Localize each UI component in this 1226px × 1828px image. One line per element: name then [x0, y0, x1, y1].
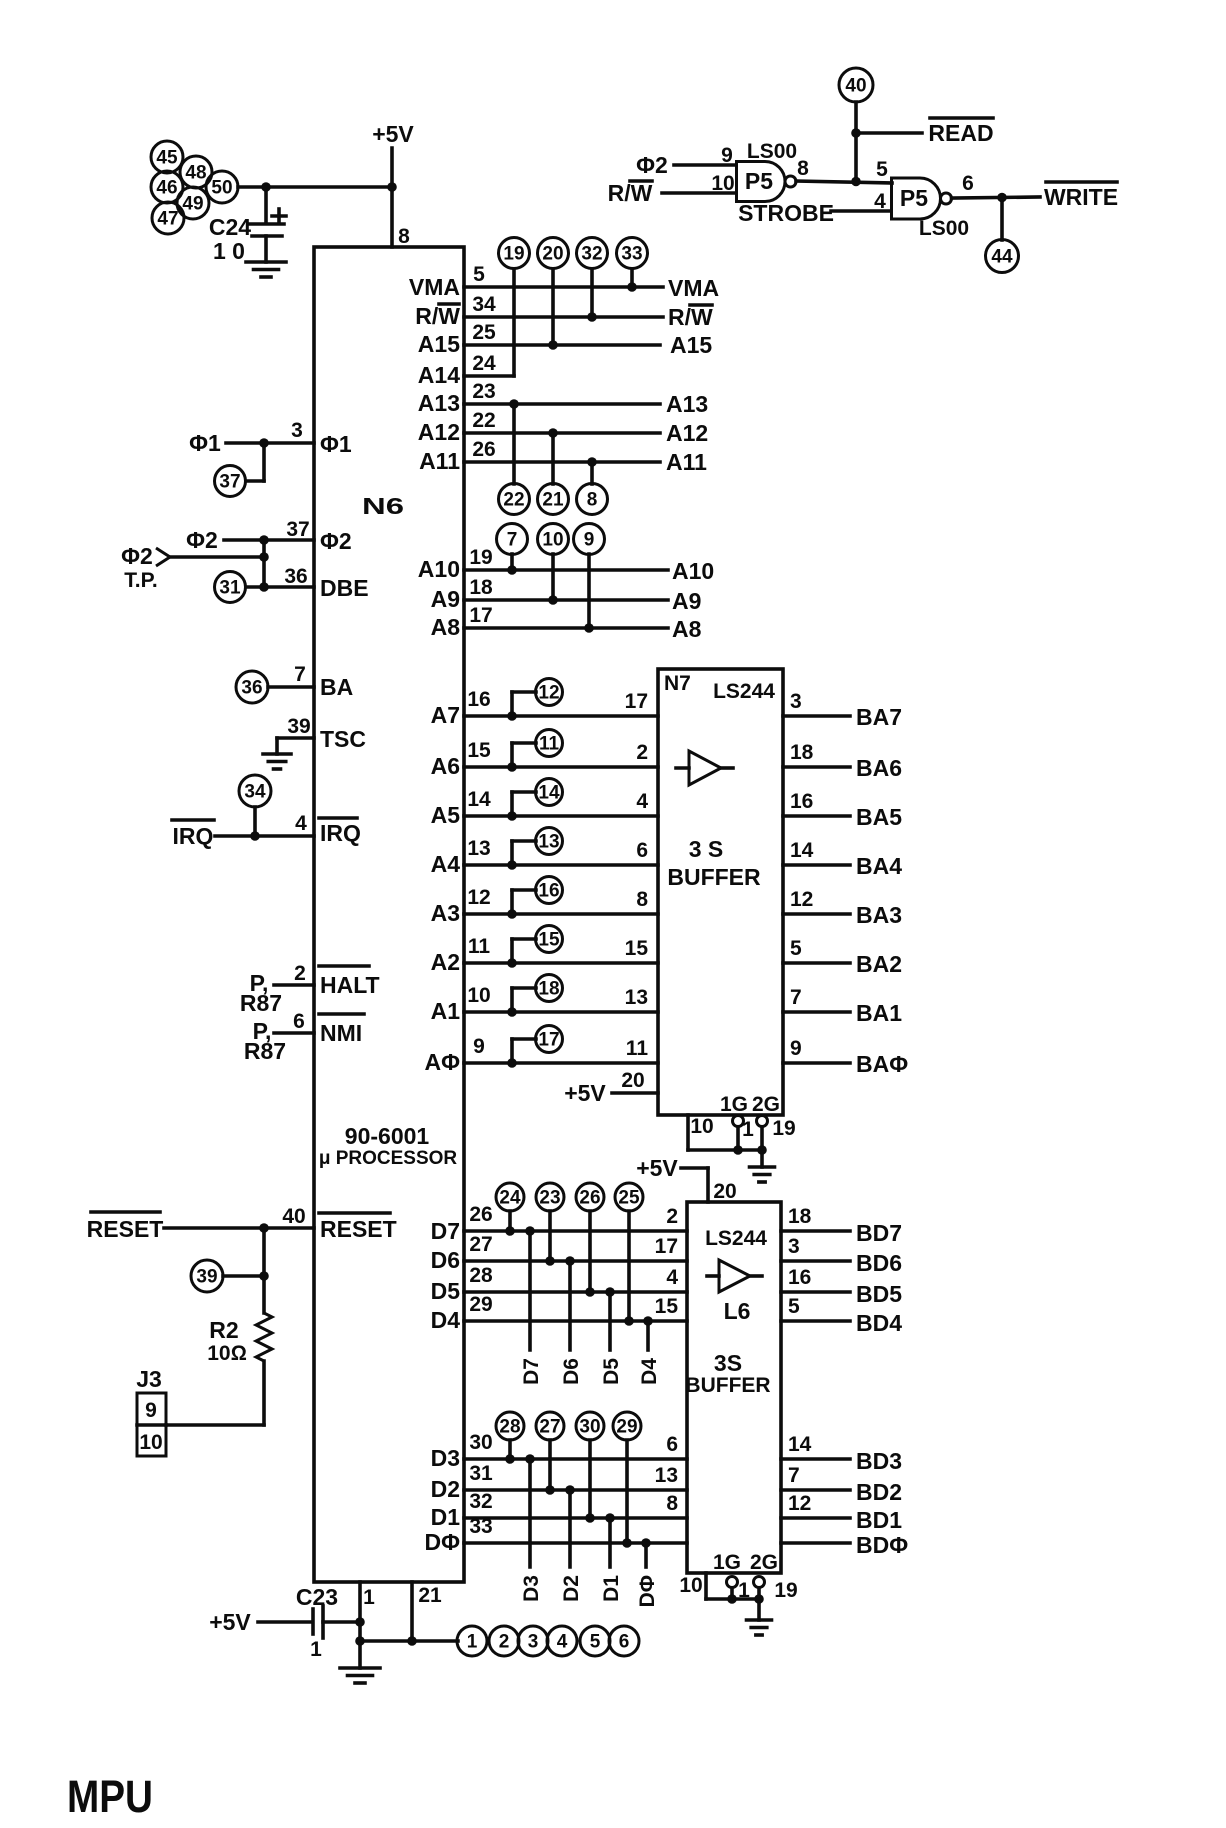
- svg-text:2G: 2G: [752, 1093, 780, 1116]
- svg-text:WRITE: WRITE: [1044, 184, 1118, 210]
- svg-text:A12: A12: [418, 419, 460, 445]
- svg-text:4: 4: [666, 1266, 678, 1289]
- svg-text:A13: A13: [666, 391, 708, 417]
- svg-text:22: 22: [503, 490, 524, 511]
- svg-text:C24: C24: [209, 214, 251, 240]
- svg-text:4: 4: [557, 1632, 568, 1653]
- svg-text:1: 1: [310, 1638, 322, 1661]
- svg-text:D1: D1: [600, 1575, 623, 1602]
- svg-text:10: 10: [467, 984, 490, 1007]
- svg-text:19: 19: [772, 1117, 795, 1140]
- svg-text:BD6: BD6: [856, 1250, 902, 1276]
- svg-text:18: 18: [790, 741, 814, 764]
- svg-text:2: 2: [294, 962, 306, 985]
- svg-text:R/W: R/W: [608, 180, 653, 206]
- svg-text:VMA: VMA: [668, 275, 719, 301]
- svg-text:+5V: +5V: [636, 1155, 678, 1181]
- svg-text:Φ1: Φ1: [320, 431, 352, 457]
- svg-text:+5V: +5V: [372, 121, 414, 147]
- svg-text:47: 47: [157, 209, 178, 230]
- svg-text:+5V: +5V: [564, 1080, 606, 1106]
- svg-text:A8: A8: [431, 614, 461, 640]
- svg-text:TSC: TSC: [320, 726, 366, 752]
- svg-text:28: 28: [499, 1417, 520, 1438]
- svg-text:5: 5: [876, 158, 888, 181]
- svg-text:BDΦ: BDΦ: [856, 1532, 908, 1558]
- svg-text:R/W: R/W: [668, 304, 713, 330]
- svg-text:8: 8: [398, 225, 410, 248]
- svg-text:24: 24: [472, 352, 496, 375]
- svg-text:4: 4: [874, 190, 886, 213]
- svg-text:BAΦ: BAΦ: [856, 1051, 908, 1077]
- svg-text:19: 19: [774, 1579, 797, 1602]
- svg-text:R87: R87: [244, 1038, 286, 1064]
- svg-text:A5: A5: [431, 802, 461, 828]
- svg-text:37: 37: [219, 472, 240, 493]
- svg-text:HALT: HALT: [320, 972, 380, 998]
- svg-text:30: 30: [579, 1417, 600, 1438]
- svg-text:23: 23: [472, 380, 495, 403]
- svg-text:Φ2: Φ2: [636, 152, 668, 178]
- svg-text:25: 25: [472, 321, 496, 344]
- svg-text:A15: A15: [418, 331, 460, 357]
- svg-text:A12: A12: [666, 420, 708, 446]
- svg-text:MPU: MPU: [67, 1771, 153, 1822]
- svg-text:21: 21: [542, 490, 564, 511]
- svg-text:DΦ: DΦ: [425, 1529, 461, 1555]
- svg-text:37: 37: [286, 518, 309, 541]
- svg-text:+5V: +5V: [209, 1609, 251, 1635]
- svg-text:BA4: BA4: [856, 853, 902, 879]
- svg-text:3 S: 3 S: [689, 836, 724, 862]
- svg-text:14: 14: [538, 783, 560, 804]
- svg-text:13: 13: [625, 986, 648, 1009]
- svg-text:IRQ: IRQ: [173, 823, 214, 849]
- svg-text:5: 5: [788, 1295, 800, 1318]
- svg-text:18: 18: [538, 979, 559, 1000]
- svg-text:9: 9: [145, 1399, 157, 1422]
- svg-text:BD3: BD3: [856, 1448, 902, 1474]
- svg-text:N7: N7: [664, 672, 691, 695]
- svg-text:STROBE: STROBE: [738, 200, 834, 226]
- svg-text:2: 2: [636, 741, 648, 764]
- svg-text:40: 40: [845, 76, 866, 97]
- svg-text:14: 14: [788, 1433, 812, 1456]
- svg-text:D6: D6: [560, 1358, 583, 1385]
- svg-text:13: 13: [655, 1464, 678, 1487]
- svg-text:16: 16: [538, 881, 559, 902]
- svg-text:R2: R2: [209, 1317, 238, 1343]
- svg-text:4: 4: [295, 812, 307, 835]
- svg-text:90-6001: 90-6001: [345, 1123, 430, 1149]
- svg-text:LS00: LS00: [747, 140, 797, 163]
- svg-text:15: 15: [625, 937, 649, 960]
- svg-text:NMI: NMI: [320, 1020, 362, 1046]
- svg-text:8: 8: [636, 888, 648, 911]
- svg-text:D3: D3: [520, 1575, 543, 1602]
- svg-text:24: 24: [499, 1188, 521, 1209]
- svg-text:14: 14: [467, 788, 491, 811]
- svg-text:11: 11: [539, 734, 560, 755]
- svg-text:BD1: BD1: [856, 1507, 902, 1533]
- svg-text:26: 26: [579, 1188, 600, 1209]
- svg-text:12: 12: [788, 1492, 811, 1515]
- svg-text:IRQ: IRQ: [320, 820, 361, 846]
- svg-text:A6: A6: [431, 753, 460, 779]
- svg-text:6: 6: [619, 1632, 630, 1653]
- svg-text:33: 33: [469, 1515, 492, 1538]
- svg-text:15: 15: [538, 930, 560, 951]
- svg-text:4: 4: [636, 790, 648, 813]
- svg-text:14: 14: [790, 839, 814, 862]
- svg-text:3: 3: [291, 419, 303, 442]
- svg-text:45: 45: [156, 148, 178, 169]
- svg-text:1G: 1G: [720, 1093, 748, 1116]
- svg-text:8: 8: [797, 157, 809, 180]
- svg-text:8: 8: [666, 1492, 678, 1515]
- svg-text:Φ1: Φ1: [189, 430, 221, 456]
- svg-text:D4: D4: [431, 1307, 461, 1333]
- svg-text:10: 10: [542, 530, 563, 551]
- svg-text:29: 29: [616, 1417, 637, 1438]
- svg-text:17: 17: [538, 1030, 559, 1051]
- svg-text:9: 9: [584, 530, 595, 551]
- svg-text:39: 39: [196, 1267, 217, 1288]
- svg-text:READ: READ: [928, 120, 993, 146]
- svg-text:P5: P5: [745, 168, 773, 194]
- svg-text:A1: A1: [431, 998, 461, 1024]
- svg-text:34: 34: [472, 293, 496, 316]
- svg-text:26: 26: [472, 438, 495, 461]
- svg-text:J3: J3: [136, 1366, 162, 1392]
- svg-text:9: 9: [721, 144, 733, 167]
- svg-text:15: 15: [467, 739, 491, 762]
- svg-text:1G: 1G: [713, 1551, 741, 1574]
- svg-text:BD2: BD2: [856, 1479, 902, 1505]
- svg-text:9: 9: [473, 1035, 485, 1058]
- svg-text:10Ω: 10Ω: [207, 1342, 247, 1365]
- svg-text:L6: L6: [724, 1298, 751, 1324]
- svg-text:A9: A9: [431, 586, 460, 612]
- svg-text:RESET: RESET: [320, 1216, 397, 1242]
- svg-text:36: 36: [241, 678, 262, 699]
- svg-text:11: 11: [468, 935, 491, 958]
- svg-text:A14: A14: [418, 362, 460, 388]
- svg-text:11: 11: [626, 1037, 649, 1060]
- svg-text:13: 13: [538, 832, 559, 853]
- svg-text:AΦ: AΦ: [425, 1049, 461, 1075]
- svg-text:34: 34: [244, 782, 266, 803]
- svg-text:50: 50: [211, 178, 232, 199]
- svg-text:A11: A11: [419, 448, 460, 474]
- svg-text:13: 13: [467, 837, 490, 860]
- svg-text:RESET: RESET: [87, 1216, 164, 1242]
- svg-text:2: 2: [499, 1632, 510, 1653]
- svg-text:A15: A15: [670, 332, 712, 358]
- svg-text:A10: A10: [418, 556, 460, 582]
- svg-text:D2: D2: [431, 1476, 460, 1502]
- svg-text:BA: BA: [320, 674, 353, 700]
- svg-text:32: 32: [581, 244, 602, 265]
- svg-text:27: 27: [469, 1233, 492, 1256]
- svg-text:6: 6: [962, 172, 974, 195]
- svg-text:A9: A9: [672, 588, 701, 614]
- svg-text:15: 15: [655, 1295, 679, 1318]
- svg-text:D4: D4: [638, 1358, 661, 1385]
- svg-text:10: 10: [679, 1574, 702, 1597]
- svg-text:7: 7: [790, 986, 802, 1009]
- svg-text:32: 32: [469, 1490, 492, 1513]
- svg-text:7: 7: [294, 663, 306, 686]
- svg-text:BUFFER: BUFFER: [667, 864, 761, 890]
- svg-text:LS244: LS244: [705, 1227, 767, 1250]
- svg-text:7: 7: [507, 530, 518, 551]
- svg-text:27: 27: [539, 1417, 560, 1438]
- svg-text:16: 16: [790, 790, 813, 813]
- svg-text:1: 1: [363, 1586, 375, 1609]
- svg-text:20: 20: [621, 1069, 644, 1092]
- svg-text:17: 17: [625, 690, 648, 713]
- svg-text:26: 26: [469, 1203, 492, 1226]
- svg-text:A2: A2: [431, 949, 460, 975]
- svg-text:30: 30: [469, 1431, 492, 1454]
- svg-text:D1: D1: [431, 1504, 461, 1530]
- svg-text:19: 19: [503, 244, 524, 265]
- svg-text:40: 40: [282, 1205, 305, 1228]
- svg-text:18: 18: [469, 576, 493, 599]
- svg-text:A11: A11: [666, 449, 707, 475]
- svg-text:39: 39: [287, 715, 310, 738]
- svg-text:10: 10: [139, 1431, 162, 1454]
- svg-text:28: 28: [469, 1264, 493, 1287]
- svg-text:BA7: BA7: [856, 704, 902, 730]
- svg-text:19: 19: [469, 546, 492, 569]
- svg-text:10: 10: [711, 172, 734, 195]
- svg-text:7: 7: [788, 1464, 800, 1487]
- svg-text:D5: D5: [600, 1358, 623, 1385]
- svg-text:3: 3: [790, 690, 802, 713]
- svg-text:48: 48: [185, 163, 206, 184]
- svg-text:10: 10: [690, 1115, 713, 1138]
- svg-text:BD4: BD4: [856, 1310, 902, 1336]
- svg-text:VMA: VMA: [409, 274, 460, 300]
- svg-text:LS00: LS00: [919, 217, 969, 240]
- svg-text:5: 5: [473, 263, 485, 286]
- svg-text:6: 6: [293, 1010, 305, 1033]
- svg-text:18: 18: [788, 1205, 812, 1228]
- svg-text:BD7: BD7: [856, 1220, 902, 1246]
- svg-text:12: 12: [538, 683, 559, 704]
- svg-text:16: 16: [467, 688, 490, 711]
- svg-text:2G: 2G: [750, 1551, 778, 1574]
- svg-text:31: 31: [469, 1462, 493, 1485]
- svg-text:5: 5: [590, 1632, 601, 1653]
- svg-text:3: 3: [788, 1235, 800, 1258]
- svg-text:23: 23: [539, 1188, 560, 1209]
- svg-text:17: 17: [655, 1235, 678, 1258]
- svg-text:8: 8: [587, 490, 598, 511]
- svg-text:T.P.: T.P.: [124, 569, 157, 592]
- svg-text:BD5: BD5: [856, 1281, 902, 1307]
- svg-text:C23: C23: [296, 1584, 338, 1610]
- svg-text:1 0: 1 0: [213, 238, 245, 264]
- svg-text:46: 46: [156, 178, 177, 199]
- svg-text:R87: R87: [240, 990, 282, 1016]
- svg-text:D5: D5: [431, 1278, 461, 1304]
- svg-text:1: 1: [467, 1632, 478, 1653]
- svg-text:LS244: LS244: [713, 680, 775, 703]
- svg-text:R/W: R/W: [415, 303, 460, 329]
- svg-text:20: 20: [542, 244, 563, 265]
- svg-text:A13: A13: [418, 390, 460, 416]
- svg-text:A3: A3: [431, 900, 460, 926]
- svg-text:31: 31: [219, 578, 241, 599]
- svg-text:2: 2: [666, 1205, 678, 1228]
- svg-text:A8: A8: [672, 616, 702, 642]
- svg-text:6: 6: [666, 1433, 678, 1456]
- svg-text:μ PROCESSOR: μ PROCESSOR: [319, 1148, 458, 1169]
- svg-text:6: 6: [636, 839, 648, 862]
- svg-text:D2: D2: [560, 1575, 583, 1602]
- svg-text:D7: D7: [431, 1218, 460, 1244]
- svg-text:22: 22: [472, 409, 495, 432]
- svg-text:D3: D3: [431, 1445, 460, 1471]
- svg-text:Φ2: Φ2: [121, 543, 153, 569]
- svg-text:16: 16: [788, 1266, 811, 1289]
- svg-text:5: 5: [790, 937, 802, 960]
- svg-text:DBE: DBE: [320, 575, 369, 601]
- svg-text:A4: A4: [431, 851, 461, 877]
- svg-text:BA6: BA6: [856, 755, 902, 781]
- svg-text:25: 25: [618, 1188, 640, 1209]
- svg-text:P5: P5: [900, 185, 928, 211]
- svg-text:44: 44: [991, 247, 1013, 268]
- svg-text:A10: A10: [672, 558, 714, 584]
- svg-text:33: 33: [621, 244, 642, 265]
- svg-text:3S: 3S: [714, 1350, 742, 1376]
- svg-text:N6: N6: [362, 493, 404, 519]
- svg-text:BUFFER: BUFFER: [685, 1374, 770, 1397]
- svg-text:BA1: BA1: [856, 1000, 902, 1026]
- svg-text:D7: D7: [520, 1358, 543, 1385]
- svg-text:21: 21: [418, 1584, 442, 1607]
- svg-text:A7: A7: [431, 702, 460, 728]
- svg-text:49: 49: [182, 194, 203, 215]
- svg-text:D6: D6: [431, 1247, 460, 1273]
- svg-text:9: 9: [790, 1037, 802, 1060]
- svg-text:1: 1: [742, 1118, 754, 1141]
- svg-text:17: 17: [469, 604, 492, 627]
- svg-text:3: 3: [528, 1632, 539, 1653]
- svg-text:36: 36: [284, 565, 307, 588]
- svg-text:Φ2: Φ2: [320, 528, 352, 554]
- svg-text:BA5: BA5: [856, 804, 902, 830]
- svg-text:BA2: BA2: [856, 951, 902, 977]
- svg-text:12: 12: [467, 886, 490, 909]
- svg-text:BA3: BA3: [856, 902, 902, 928]
- svg-text:29: 29: [469, 1293, 492, 1316]
- svg-text:12: 12: [790, 888, 813, 911]
- svg-text:Φ2: Φ2: [186, 527, 218, 553]
- svg-text:DΦ: DΦ: [636, 1575, 659, 1607]
- svg-text:20: 20: [713, 1180, 736, 1203]
